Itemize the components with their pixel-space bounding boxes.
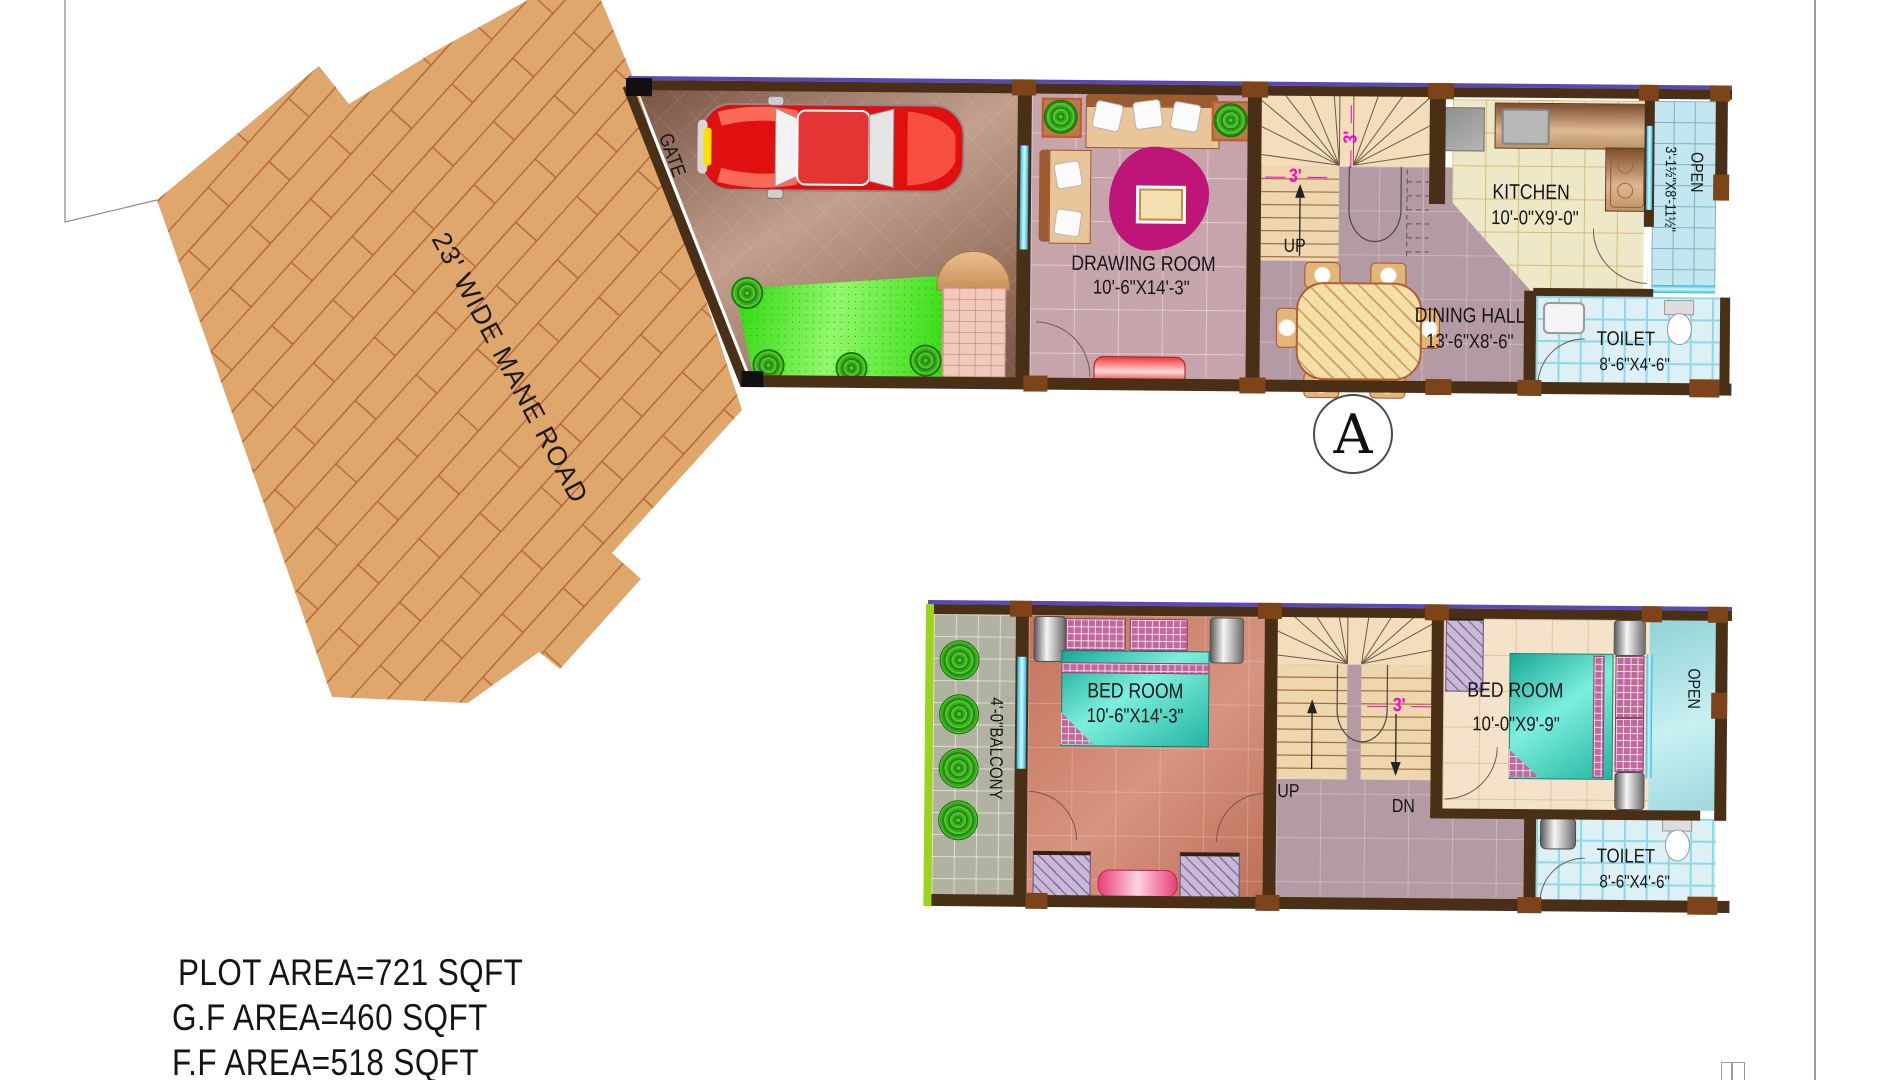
bedside-mat xyxy=(1097,869,1177,898)
dimension-line xyxy=(1411,706,1431,708)
shrub-icon xyxy=(938,800,978,840)
wall-pillar xyxy=(1642,606,1662,622)
ff-area-text: F.F AREA=518 SQFT xyxy=(172,1042,479,1080)
bed-pillow xyxy=(1066,618,1126,651)
wall-pillar xyxy=(1255,895,1279,911)
window xyxy=(1646,654,1653,778)
shrub-icon xyxy=(939,640,979,680)
wall-pillar xyxy=(1517,897,1541,913)
bed-runner xyxy=(1593,656,1605,778)
dimension-line xyxy=(1367,706,1387,708)
first-floor-plan: 4'-0"BALCONY BED ROOM 10'-6"X14'-3" BED … xyxy=(0,0,1886,1080)
shrub-icon xyxy=(938,748,978,788)
wall-pillar xyxy=(1708,607,1728,623)
gf-area-text: G.F AREA=460 SQFT xyxy=(172,997,488,1039)
bed-pillow xyxy=(1130,619,1188,652)
nightstand xyxy=(1210,617,1244,663)
dn-ff-label: DN xyxy=(1392,796,1415,818)
open-ff-floor xyxy=(1648,620,1720,811)
wall-pillar xyxy=(1687,897,1717,915)
wall-pillar xyxy=(1025,893,1047,909)
wall-pillar xyxy=(1010,601,1032,617)
bed-pillow xyxy=(1615,718,1644,772)
washbasin xyxy=(1540,817,1576,849)
staircase-ff xyxy=(1277,609,1432,780)
wall-pillar xyxy=(1711,693,1727,719)
toilet-ff-label: TOILET xyxy=(1596,845,1655,869)
shrub-icon xyxy=(939,694,979,734)
bed-post xyxy=(1614,620,1646,656)
bedroom-small-dims: 10'-0"X9'-9" xyxy=(1472,713,1560,737)
open-ff-label: OPEN xyxy=(1683,668,1703,709)
toilet-ff-dims: 8'-6"X4'-6" xyxy=(1599,871,1669,893)
bed-pillow xyxy=(1615,656,1645,718)
up-ff-label: UP xyxy=(1277,781,1299,803)
bedroom-large-label: BED ROOM xyxy=(1087,679,1183,704)
window xyxy=(1017,657,1027,769)
bedroom-small-label: BED ROOM xyxy=(1467,679,1563,704)
floor-plan-canvas: 23' WIDE MANE ROAD xyxy=(0,0,1886,1080)
wall-pillar xyxy=(1258,603,1282,619)
balcony-label: 4'-0"BALCONY xyxy=(985,697,1007,800)
wall-bed1-right xyxy=(1262,607,1278,907)
wall-toilet-left-ff xyxy=(1523,817,1536,901)
bed-post xyxy=(1614,772,1644,810)
wall-stair-right-ff xyxy=(1430,608,1444,814)
bedroom-large-dims: 10'-6"X14'-3" xyxy=(1087,705,1184,729)
wc-bowl xyxy=(1665,829,1690,861)
wardrobe xyxy=(1032,851,1090,899)
stair-dim-ff: 3' xyxy=(1393,695,1406,717)
wall-pillar xyxy=(1425,604,1449,620)
plot-area-text: PLOT AREA=721 SQFT xyxy=(178,952,523,994)
wardrobe xyxy=(1179,852,1239,900)
bed-runner xyxy=(1061,662,1209,674)
